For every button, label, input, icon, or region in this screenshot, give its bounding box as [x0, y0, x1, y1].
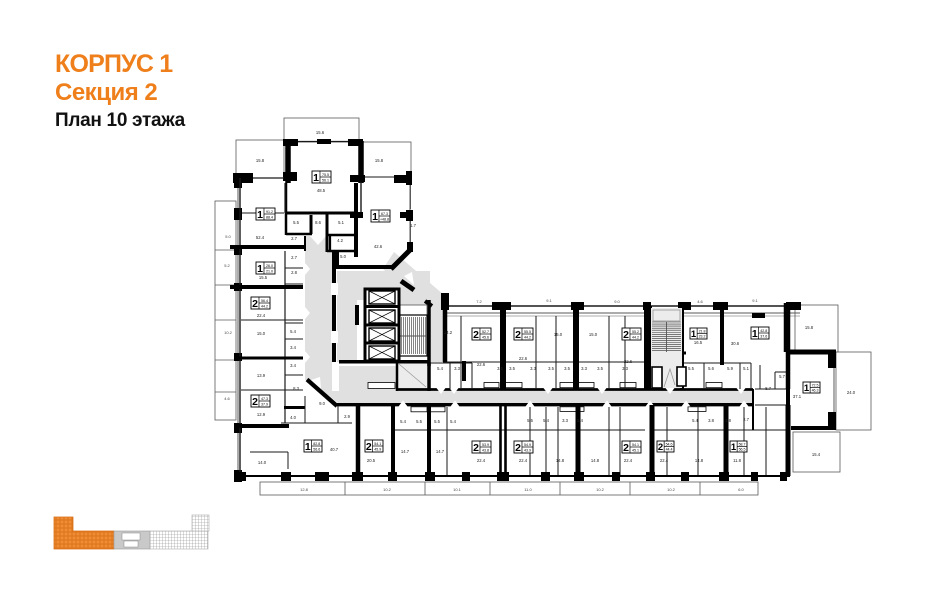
svg-text:55.5: 55.5: [524, 330, 531, 334]
svg-text:20.5: 20.5: [367, 458, 376, 463]
svg-text:3.3: 3.3: [454, 366, 460, 371]
svg-text:8.7: 8.7: [765, 386, 771, 391]
svg-text:22.6: 22.6: [519, 356, 528, 361]
svg-text:2.7: 2.7: [743, 417, 749, 422]
svg-text:5.1: 5.1: [743, 366, 749, 371]
svg-text:11.0: 11.0: [524, 487, 532, 492]
svg-text:22.6: 22.6: [477, 362, 486, 367]
svg-text:15.5: 15.5: [259, 275, 268, 280]
svg-text:10.2: 10.2: [596, 487, 605, 492]
svg-text:72.5: 72.5: [812, 383, 819, 387]
svg-text:48.5: 48.5: [317, 188, 326, 193]
svg-text:1: 1: [752, 328, 758, 340]
svg-text:56.5: 56.5: [739, 448, 746, 452]
svg-text:56.6: 56.6: [313, 448, 320, 452]
svg-text:30.6: 30.6: [731, 341, 740, 346]
svg-text:2: 2: [623, 442, 629, 454]
svg-text:1: 1: [305, 441, 311, 453]
svg-text:14.0: 14.0: [258, 460, 267, 465]
svg-text:9.1: 9.1: [752, 298, 758, 303]
svg-text:88.4: 88.4: [266, 216, 273, 220]
svg-text:4.6: 4.6: [224, 396, 230, 401]
svg-text:12.9: 12.9: [257, 412, 266, 417]
svg-text:1: 1: [691, 329, 697, 340]
svg-text:3.8: 3.8: [708, 418, 714, 423]
svg-text:91.2: 91.2: [266, 210, 273, 214]
svg-text:1: 1: [257, 263, 263, 275]
svg-text:5.5: 5.5: [527, 418, 533, 423]
svg-text:2: 2: [252, 396, 258, 408]
svg-text:14.2: 14.2: [444, 330, 453, 335]
svg-text:5.0: 5.0: [225, 234, 231, 239]
svg-text:15.0: 15.0: [257, 331, 266, 336]
svg-text:3.5: 3.5: [509, 366, 515, 371]
svg-text:37.6: 37.6: [760, 335, 767, 339]
svg-text:22.4: 22.4: [660, 458, 669, 463]
svg-text:5.5: 5.5: [434, 419, 440, 424]
svg-text:22.6: 22.6: [624, 359, 633, 364]
svg-text:2: 2: [473, 442, 479, 454]
svg-text:46.3: 46.3: [812, 389, 819, 393]
svg-text:22.4: 22.4: [624, 458, 633, 463]
svg-text:13.9: 13.9: [257, 373, 266, 378]
svg-text:2.7: 2.7: [291, 255, 297, 260]
svg-text:3.3: 3.3: [530, 366, 536, 371]
svg-text:3.5: 3.5: [564, 366, 570, 371]
svg-text:44.4: 44.4: [666, 448, 673, 452]
svg-text:2: 2: [658, 442, 663, 453]
svg-text:2: 2: [366, 441, 372, 453]
svg-text:22.4: 22.4: [257, 313, 266, 318]
svg-text:14.7: 14.7: [436, 449, 445, 454]
svg-text:56.1: 56.1: [322, 179, 329, 183]
svg-text:8.6: 8.6: [315, 220, 321, 225]
svg-text:45.1: 45.1: [632, 449, 639, 453]
svg-text:5.4: 5.4: [692, 418, 698, 423]
svg-text:16.5: 16.5: [694, 340, 703, 345]
svg-text:8.3: 8.3: [293, 386, 299, 391]
svg-text:43.8: 43.8: [482, 449, 489, 453]
svg-text:42.6: 42.6: [374, 244, 383, 249]
svg-text:5.4: 5.4: [450, 419, 456, 424]
svg-text:9.1: 9.1: [546, 298, 552, 303]
svg-text:14.8: 14.8: [556, 458, 565, 463]
svg-text:5.5: 5.5: [293, 220, 299, 225]
svg-text:23.2: 23.2: [699, 335, 706, 339]
svg-text:54.9: 54.9: [524, 443, 531, 447]
svg-text:43.9: 43.9: [524, 449, 531, 453]
svg-text:5.4: 5.4: [577, 418, 583, 423]
svg-text:54.6: 54.6: [666, 442, 673, 446]
svg-text:2.9: 2.9: [344, 414, 350, 419]
svg-text:54.1: 54.1: [632, 443, 639, 447]
svg-text:3.5: 3.5: [548, 366, 554, 371]
svg-text:22.4: 22.4: [477, 458, 486, 463]
svg-text:5.4: 5.4: [543, 418, 549, 423]
svg-text:10.2: 10.2: [667, 487, 676, 492]
svg-text:10.1: 10.1: [453, 487, 462, 492]
svg-text:3.5: 3.5: [597, 366, 603, 371]
svg-text:3.3: 3.3: [581, 366, 587, 371]
svg-text:14.8: 14.8: [695, 458, 704, 463]
svg-text:4.2: 4.2: [337, 238, 343, 243]
svg-text:82.8: 82.8: [313, 442, 320, 446]
svg-text:24.0: 24.0: [847, 390, 856, 395]
svg-text:12.8: 12.8: [300, 487, 309, 492]
svg-text:1: 1: [257, 209, 263, 221]
svg-text:5.2: 5.2: [224, 263, 230, 268]
svg-text:4.0: 4.0: [290, 415, 296, 420]
svg-text:5.6: 5.6: [708, 366, 714, 371]
svg-text:7.2: 7.2: [476, 299, 482, 304]
svg-text:4.6: 4.6: [697, 299, 703, 304]
svg-text:44.2: 44.2: [632, 336, 639, 340]
svg-text:1.7: 1.7: [410, 223, 416, 228]
svg-text:53.9: 53.9: [482, 443, 489, 447]
svg-text:2: 2: [473, 329, 479, 341]
svg-text:47.3: 47.3: [261, 397, 268, 401]
svg-text:15.6: 15.6: [316, 130, 325, 135]
svg-text:2: 2: [252, 298, 258, 310]
svg-text:9.0: 9.0: [614, 299, 620, 304]
svg-text:15.8: 15.8: [256, 158, 265, 163]
svg-text:14.7: 14.7: [401, 449, 410, 454]
svg-text:58.7: 58.7: [739, 442, 746, 446]
svg-text:15.0: 15.0: [589, 332, 598, 337]
svg-text:+48.8: +48.8: [380, 218, 389, 222]
svg-text:44.2: 44.2: [261, 305, 268, 309]
svg-text:42.8: 42.8: [760, 329, 767, 333]
svg-text:37.9: 37.9: [261, 403, 268, 407]
svg-text:2: 2: [623, 329, 629, 341]
svg-text:11.8: 11.8: [733, 458, 742, 463]
svg-text:1: 1: [731, 442, 737, 453]
svg-text:2.7: 2.7: [291, 236, 297, 241]
svg-text:21.8: 21.8: [699, 329, 706, 333]
svg-text:3.3: 3.3: [562, 418, 568, 423]
svg-text:22.4: 22.4: [519, 458, 528, 463]
svg-text:5.1: 5.1: [338, 220, 344, 225]
svg-text:15.4: 15.4: [812, 452, 821, 457]
svg-text:2: 2: [515, 329, 521, 341]
svg-text:3.5: 3.5: [497, 366, 503, 371]
svg-text:56.4: 56.4: [261, 299, 268, 303]
svg-text:9.0: 9.0: [319, 401, 325, 406]
svg-text:55.2: 55.2: [632, 330, 639, 334]
svg-text:5.5: 5.5: [416, 419, 422, 424]
svg-text:15.8: 15.8: [805, 325, 814, 330]
svg-text:6.0: 6.0: [738, 487, 744, 492]
svg-text:5.0: 5.0: [340, 254, 346, 259]
svg-text:5.5: 5.5: [688, 366, 694, 371]
svg-text:40.7: 40.7: [330, 447, 339, 452]
svg-text:15.8: 15.8: [375, 158, 384, 163]
svg-text:3.8: 3.8: [725, 418, 731, 423]
svg-text:10.2: 10.2: [383, 487, 392, 492]
svg-text:67.3: 67.3: [381, 212, 388, 216]
svg-text:1: 1: [372, 211, 378, 223]
svg-text:37.1: 37.1: [793, 394, 802, 399]
svg-text:3.4: 3.4: [290, 363, 296, 368]
svg-text:15.0: 15.0: [554, 332, 563, 337]
svg-text:54.1: 54.1: [374, 442, 381, 446]
svg-text:1: 1: [313, 172, 319, 184]
svg-text:2.8: 2.8: [291, 270, 297, 275]
svg-text:5.4: 5.4: [437, 366, 443, 371]
svg-text:3.3: 3.3: [622, 366, 628, 371]
svg-text:3.4: 3.4: [290, 345, 296, 350]
svg-text:45.6: 45.6: [482, 336, 489, 340]
svg-text:14.8: 14.8: [591, 458, 600, 463]
svg-text:5.4: 5.4: [400, 419, 406, 424]
svg-text:10.2: 10.2: [224, 330, 233, 335]
svg-text:2: 2: [515, 442, 521, 454]
svg-text:5.9: 5.9: [727, 366, 733, 371]
svg-text:45.9: 45.9: [374, 448, 381, 452]
svg-text:75.5: 75.5: [322, 173, 329, 177]
svg-text:44.2: 44.2: [524, 336, 531, 340]
svg-text:52.4: 52.4: [256, 235, 265, 240]
svg-text:52.7: 52.7: [482, 330, 489, 334]
svg-text:5.7: 5.7: [779, 374, 785, 379]
svg-text:1: 1: [804, 383, 810, 394]
svg-text:21.0: 21.0: [266, 270, 273, 274]
svg-text:26.0: 26.0: [266, 264, 273, 268]
svg-text:5.4: 5.4: [290, 329, 296, 334]
